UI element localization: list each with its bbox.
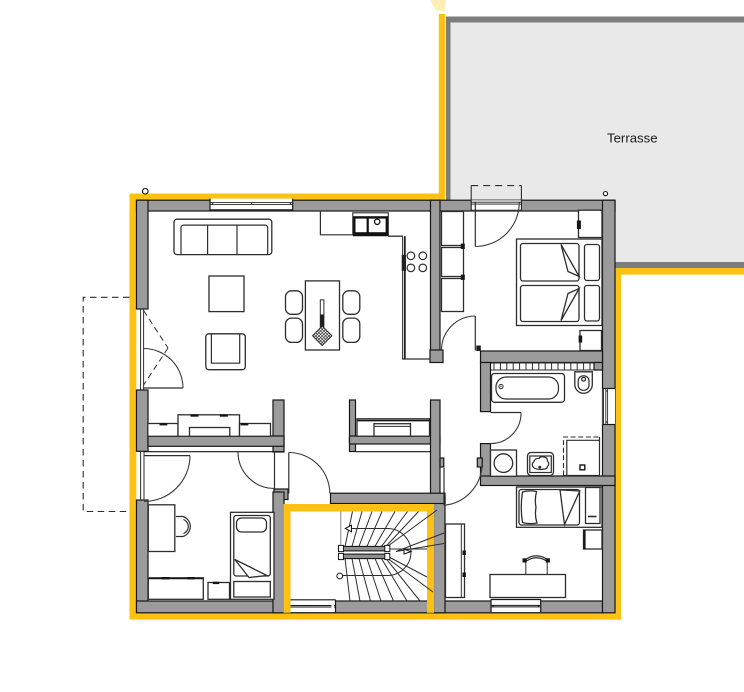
svg-text:Terrasse: Terrasse [607, 131, 658, 146]
